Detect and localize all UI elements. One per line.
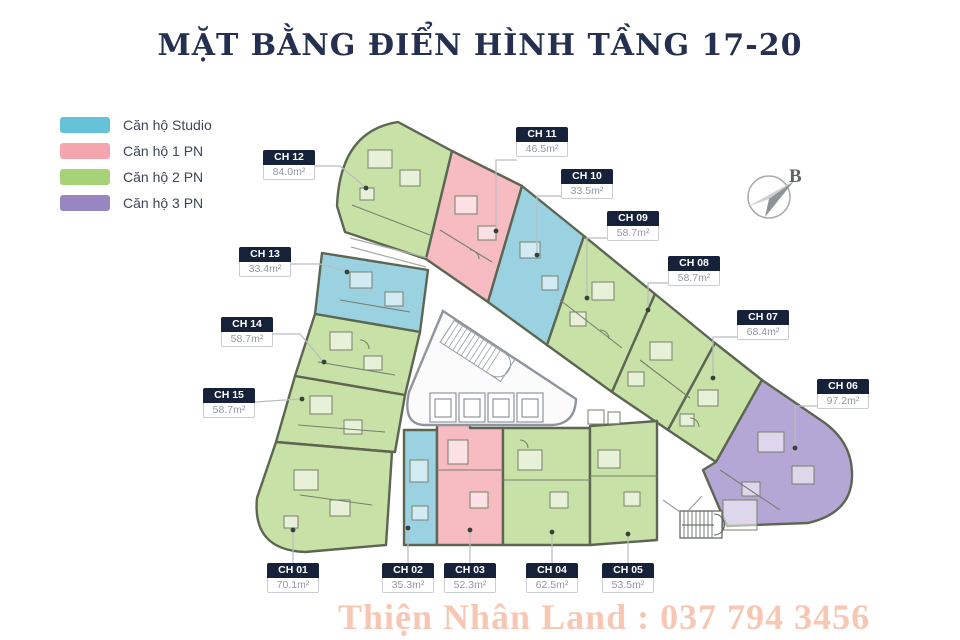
unit-label-ch15: CH 15 58.7m² (203, 388, 255, 418)
unit-id: CH 06 (817, 379, 869, 394)
unit-id: CH 01 (267, 563, 319, 578)
unit-area: 33.4m² (239, 262, 291, 277)
unit-area: 97.2m² (817, 394, 869, 409)
unit-label-ch10: CH 10 33.5m² (561, 169, 613, 199)
unit-id: CH 10 (561, 169, 613, 184)
unit-area: 70.1m² (267, 578, 319, 593)
unit-area: 68.4m² (737, 325, 789, 340)
unit-label-ch02: CH 02 35.3m² (382, 563, 434, 593)
unit-label-ch12: CH 12 84.0m² (263, 150, 315, 180)
unit-area: 58.7m² (203, 403, 255, 418)
watermark-text: Thiện Nhân Land : 037 794 3456 (338, 596, 870, 638)
unit-id: CH 07 (737, 310, 789, 325)
unit-label-ch06: CH 06 97.2m² (817, 379, 869, 409)
unit-label-ch04: CH 04 62.5m² (526, 563, 578, 593)
unit-label-ch13: CH 13 33.4m² (239, 247, 291, 277)
unit-area: 53.5m² (602, 578, 654, 593)
unit-area: 33.5m² (561, 184, 613, 199)
unit-ch05-shape (590, 421, 657, 545)
unit-label-ch14: CH 14 58.7m² (221, 317, 273, 347)
unit-area: 52.3m² (444, 578, 496, 593)
unit-id: CH 09 (607, 211, 659, 226)
compass-north-label: B (789, 166, 802, 187)
unit-id: CH 14 (221, 317, 273, 332)
unit-id: CH 13 (239, 247, 291, 262)
unit-area: 62.5m² (526, 578, 578, 593)
unit-ch01-shape (257, 442, 392, 552)
unit-ch03-shape (437, 414, 503, 545)
unit-area: 84.0m² (263, 165, 315, 180)
unit-id: CH 15 (203, 388, 255, 403)
unit-id: CH 08 (668, 256, 720, 271)
unit-label-ch03: CH 03 52.3m² (444, 563, 496, 593)
unit-ch04-shape (503, 428, 590, 545)
unit-id: CH 03 (444, 563, 496, 578)
unit-area: 58.7m² (668, 271, 720, 286)
unit-id: CH 02 (382, 563, 434, 578)
side-staircase (663, 496, 725, 538)
unit-id: CH 12 (263, 150, 315, 165)
unit-id: CH 04 (526, 563, 578, 578)
floorplan-drawing: B (0, 0, 960, 640)
unit-label-ch05: CH 05 53.5m² (602, 563, 654, 593)
unit-label-ch09: CH 09 58.7m² (607, 211, 659, 241)
unit-id: CH 11 (516, 127, 568, 142)
unit-area: 46.5m² (516, 142, 568, 157)
unit-label-ch07: CH 07 68.4m² (737, 310, 789, 340)
unit-area: 58.7m² (221, 332, 273, 347)
unit-label-ch08: CH 08 58.7m² (668, 256, 720, 286)
unit-label-ch01: CH 01 70.1m² (267, 563, 319, 593)
compass: B (747, 166, 802, 218)
unit-id: CH 05 (602, 563, 654, 578)
unit-area: 58.7m² (607, 226, 659, 241)
floorplan-page: MẶT BẰNG ĐIỂN HÌNH TẦNG 17-20 Căn hộ Stu… (0, 0, 960, 640)
unit-area: 35.3m² (382, 578, 434, 593)
unit-label-ch11: CH 11 46.5m² (516, 127, 568, 157)
